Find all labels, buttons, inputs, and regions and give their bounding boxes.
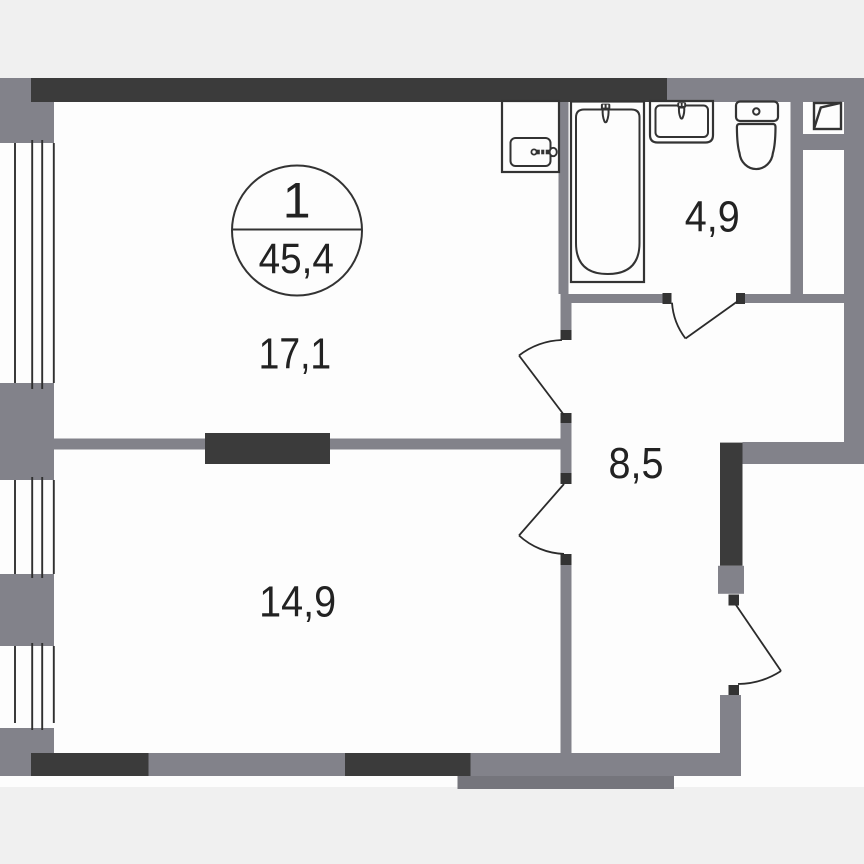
svg-text:8,5: 8,5	[609, 439, 664, 488]
svg-text:14,9: 14,9	[259, 577, 336, 626]
svg-text:1: 1	[283, 172, 311, 228]
svg-text:4,9: 4,9	[685, 192, 740, 241]
svg-text:45,4: 45,4	[259, 235, 334, 283]
svg-text:17,1: 17,1	[259, 330, 332, 379]
